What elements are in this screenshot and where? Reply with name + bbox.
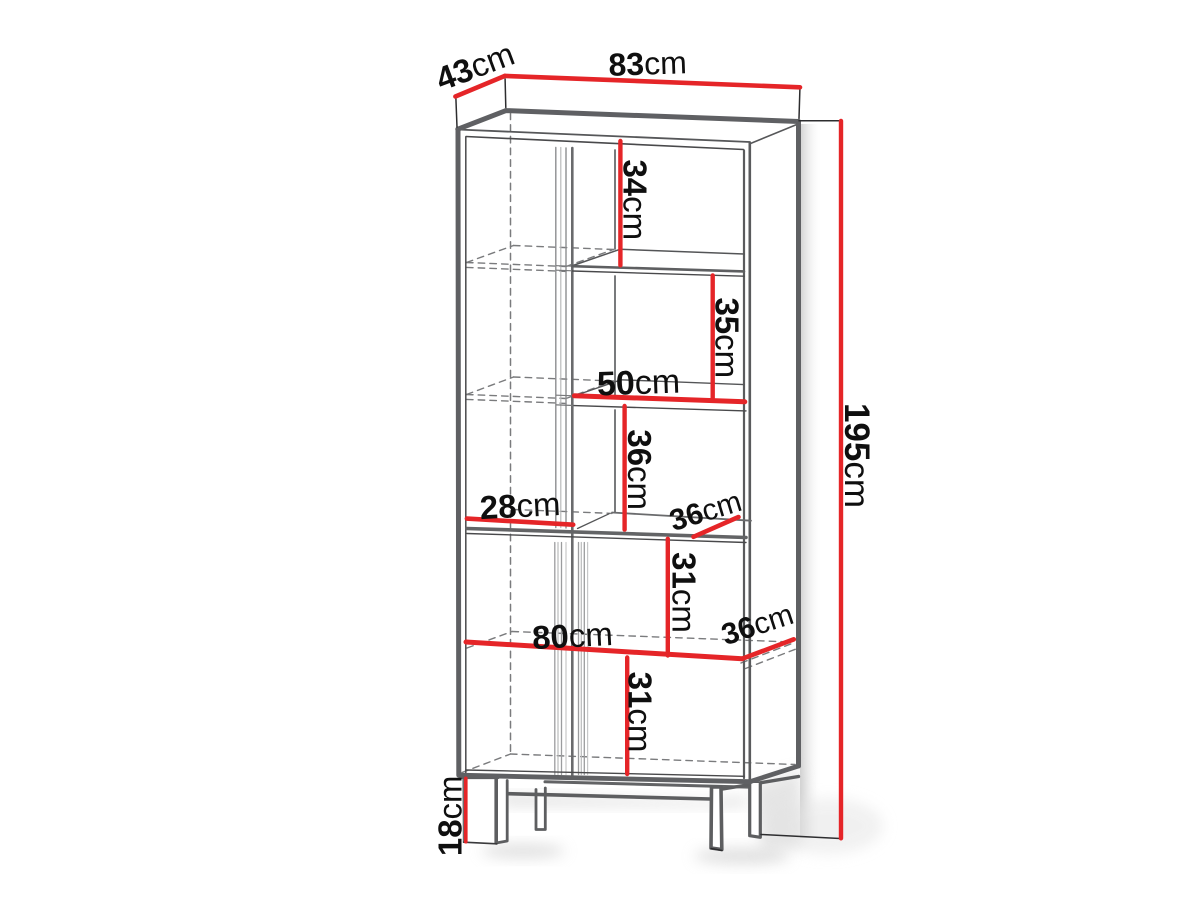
svg-text:35cm: 35cm (709, 297, 746, 378)
svg-text:80cm: 80cm (531, 615, 614, 656)
svg-text:83cm: 83cm (608, 44, 687, 83)
svg-text:31cm: 31cm (622, 672, 659, 753)
svg-text:36cm: 36cm (621, 429, 658, 510)
svg-text:18cm: 18cm (432, 775, 469, 856)
svg-text:28cm: 28cm (479, 485, 562, 526)
svg-text:50cm: 50cm (596, 363, 680, 404)
svg-text:31cm: 31cm (666, 552, 703, 633)
svg-text:34cm: 34cm (616, 159, 653, 240)
svg-text:195cm: 195cm (837, 403, 876, 508)
